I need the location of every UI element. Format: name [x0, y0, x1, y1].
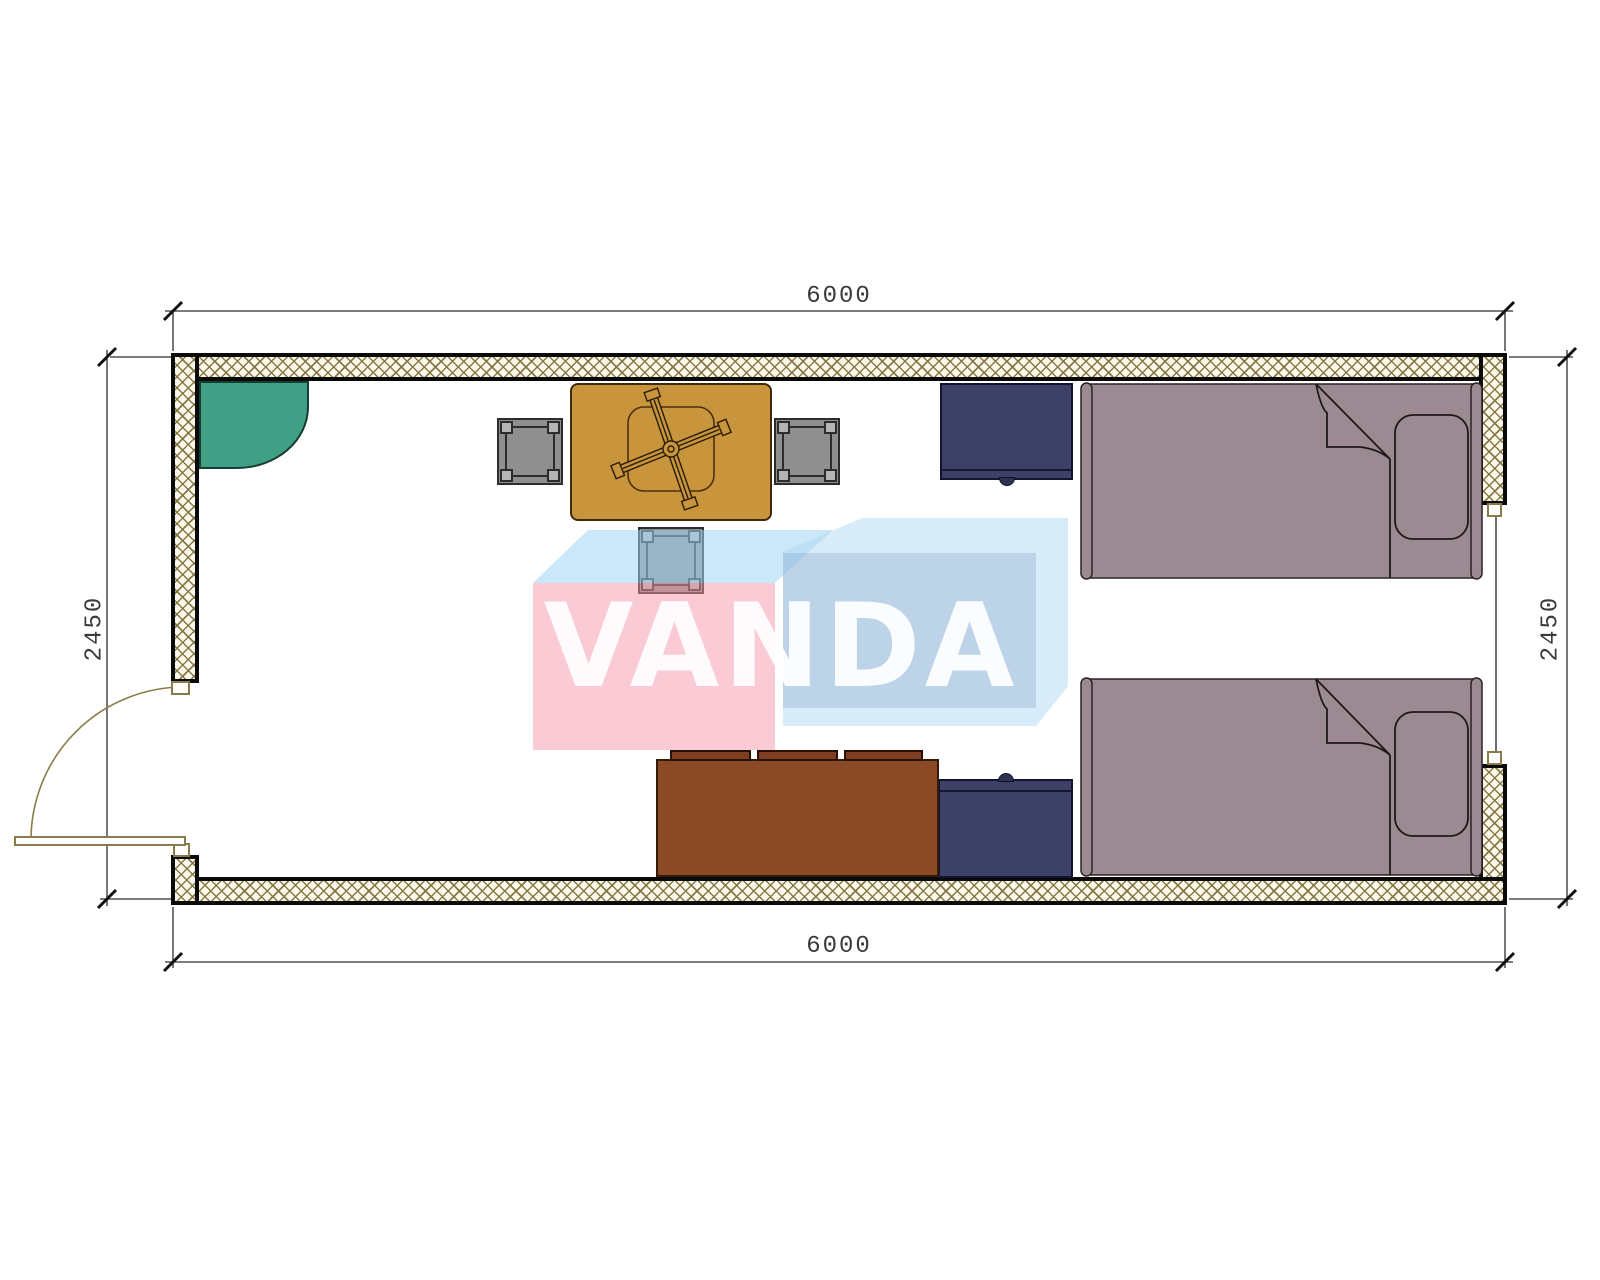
- corner-unit: [199, 381, 309, 469]
- bed-graphic: [1080, 677, 1483, 877]
- desk-shelf: [844, 750, 923, 761]
- dimension-right: 2450: [1538, 567, 1565, 691]
- nightstand-knob: [998, 773, 1014, 782]
- dimension-top: 6000: [759, 283, 919, 310]
- bed-graphic: [1080, 382, 1483, 580]
- table-fan-icon: [572, 385, 770, 519]
- square-table: [570, 383, 772, 521]
- chair-post: [777, 421, 790, 434]
- dimension-left: 2450: [82, 567, 109, 691]
- desk-shelf: [670, 750, 751, 761]
- chair-post: [547, 421, 560, 434]
- nightstand-rail: [940, 790, 1071, 792]
- chair-post: [824, 421, 837, 434]
- window-frame-top: [1487, 503, 1502, 517]
- wall-right-upper: [1479, 353, 1507, 505]
- chair-post: [500, 421, 513, 434]
- chair-left: [497, 418, 563, 485]
- chair-post: [547, 469, 560, 482]
- floor-plan-canvas: 6000 6000 2450 2450: [0, 0, 1600, 1280]
- wall-left: [171, 353, 199, 683]
- desk-shelf: [757, 750, 838, 761]
- bed-bottom: [1080, 677, 1483, 877]
- window-frame-bottom: [1487, 751, 1502, 765]
- chair-right: [774, 418, 840, 485]
- door-frame-top: [171, 681, 190, 695]
- wall-corner-stub: [171, 855, 199, 905]
- nightstand-knob: [999, 477, 1015, 486]
- door-swing-arc: [31, 687, 184, 840]
- chair-post: [500, 469, 513, 482]
- chair-post: [777, 469, 790, 482]
- nightstand-top: [940, 383, 1073, 480]
- door-leaf: [14, 836, 186, 846]
- nightstand-bottom: [938, 779, 1073, 878]
- dimension-bottom: 6000: [759, 933, 919, 960]
- nightstand-rail: [942, 469, 1071, 471]
- brand-watermark: VANDA: [520, 584, 1042, 714]
- wall-top: [171, 353, 1507, 381]
- chair-post: [824, 469, 837, 482]
- bed-top: [1080, 382, 1483, 580]
- desk: [656, 759, 939, 877]
- wall-bottom: [195, 877, 1507, 905]
